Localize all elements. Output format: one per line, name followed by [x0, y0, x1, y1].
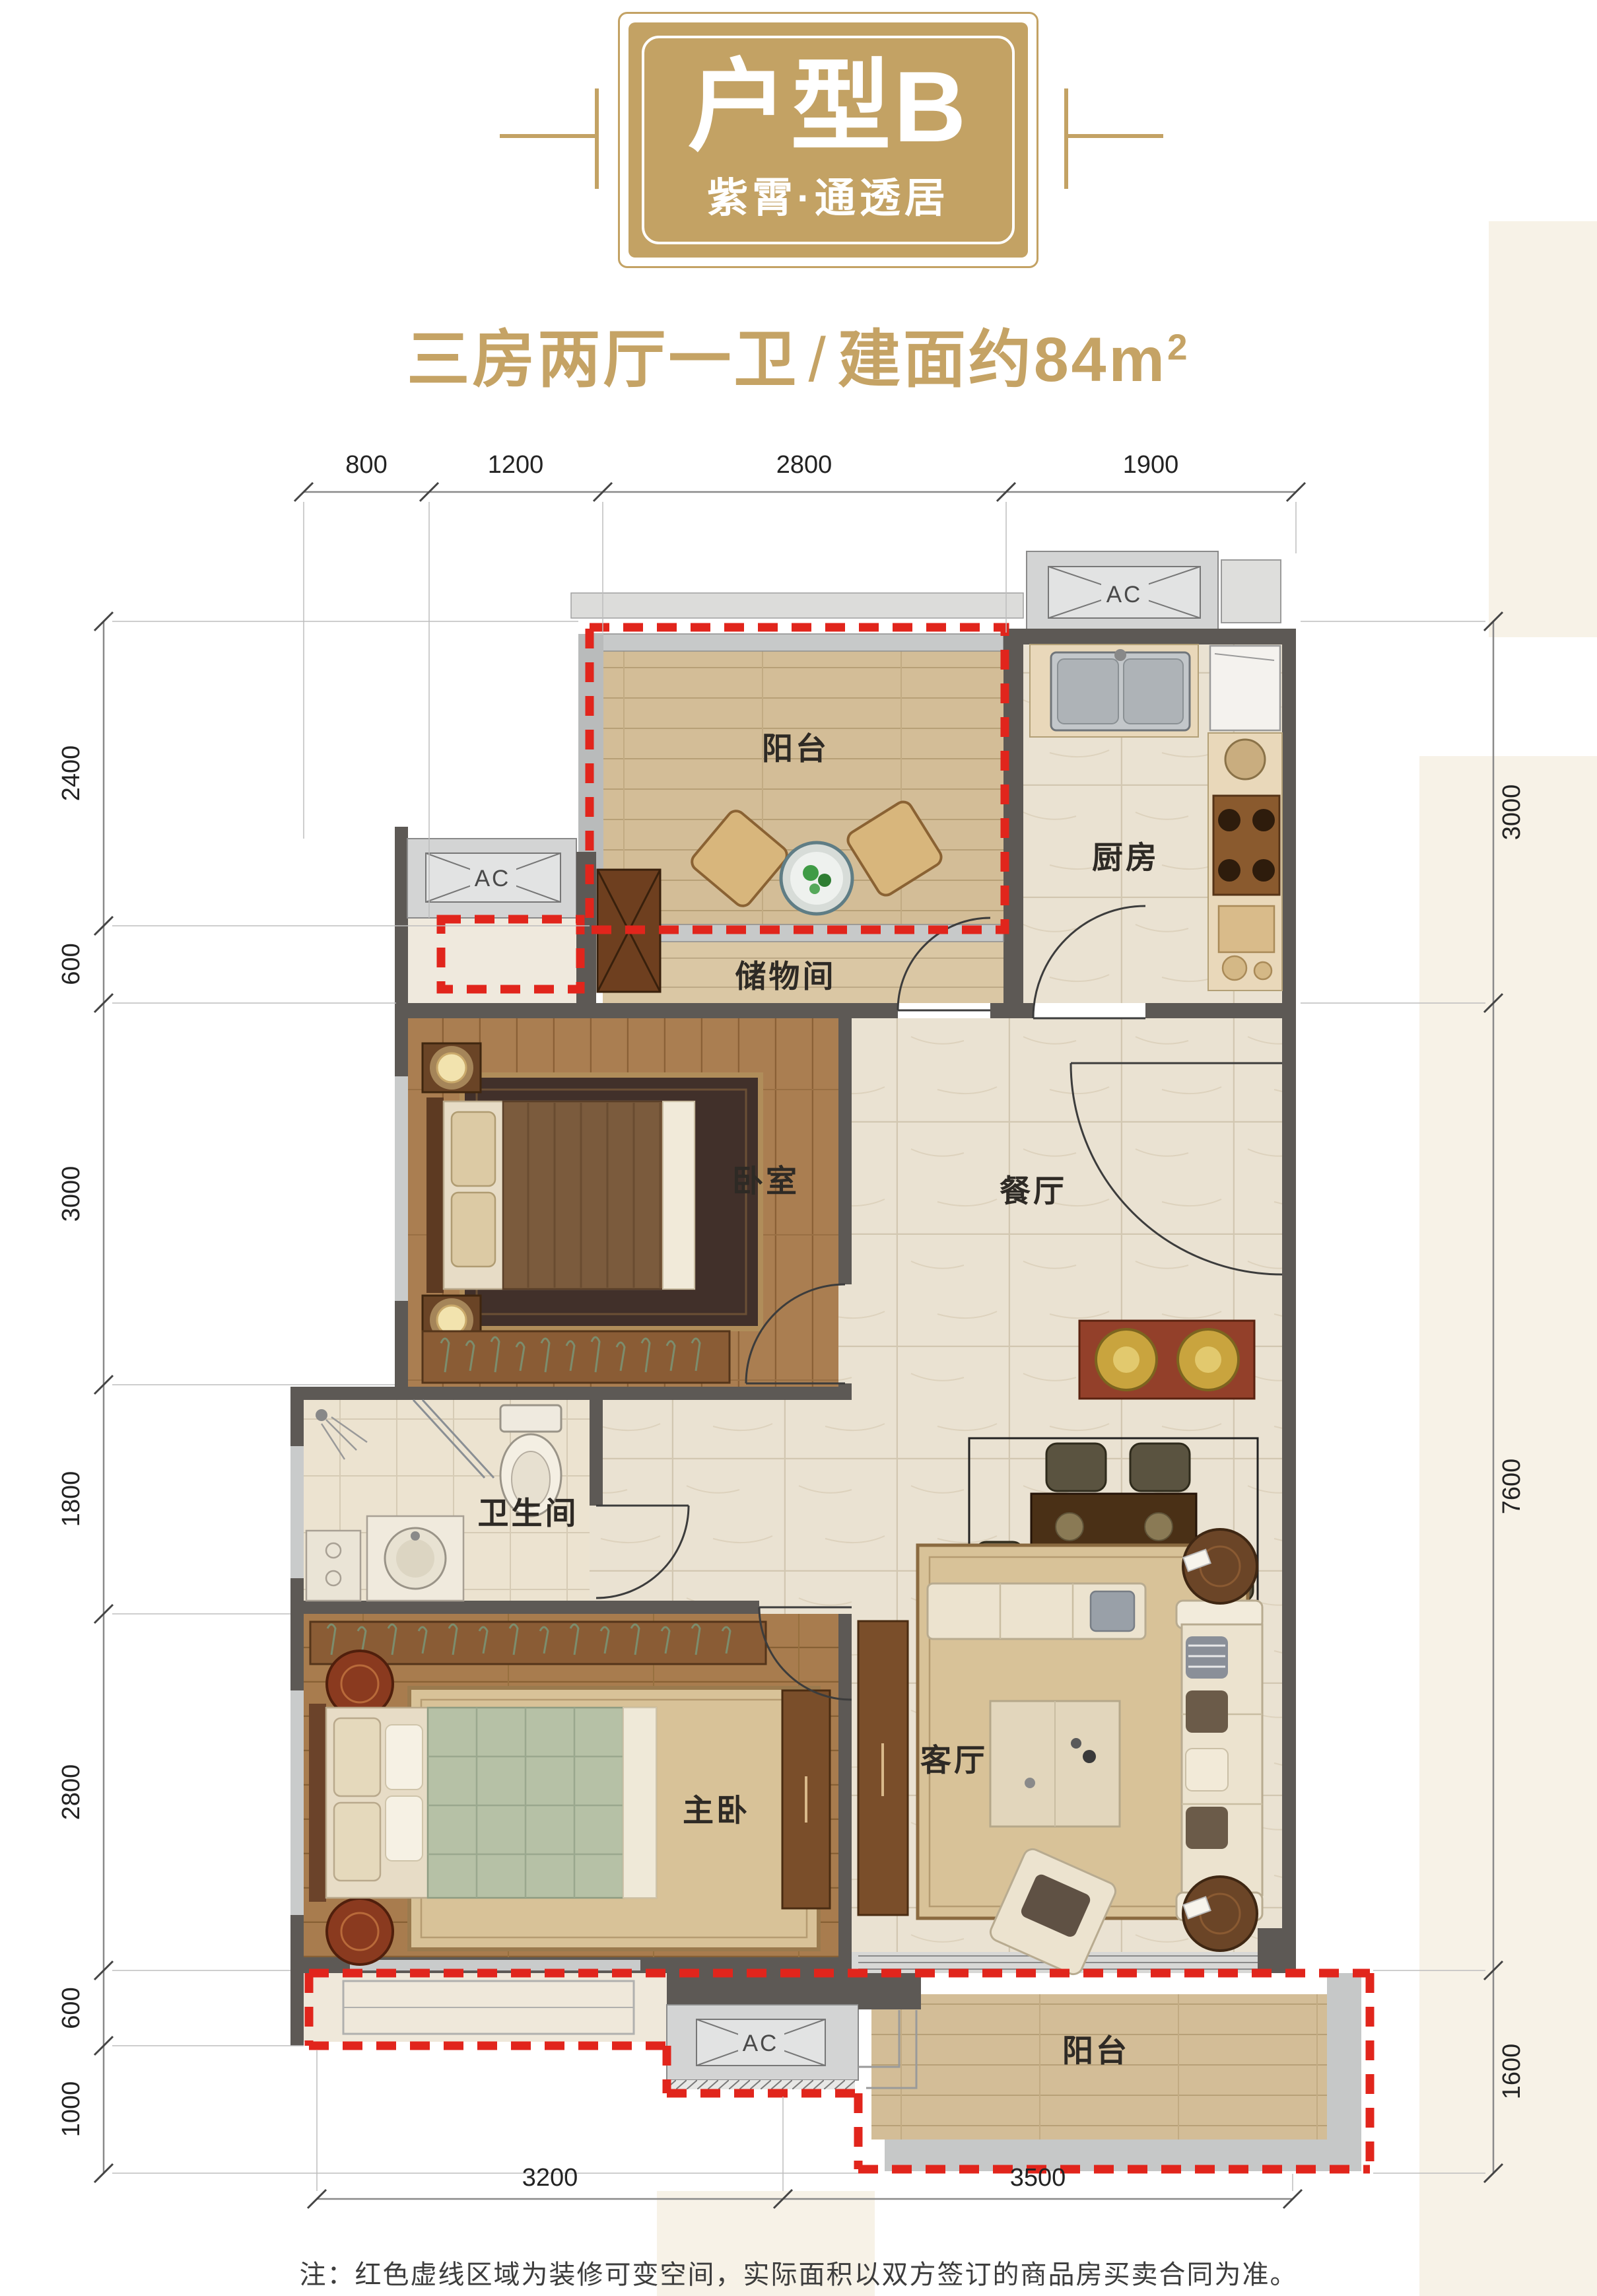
- dining-chair: [1130, 1444, 1190, 1491]
- bedroom-furniture: [423, 1043, 761, 1383]
- place-setting: [1056, 1513, 1083, 1541]
- balcony-table-top: [790, 852, 843, 905]
- sofa-pillow: [1186, 1636, 1228, 1679]
- dining-chair: [1046, 1444, 1106, 1491]
- plant-icon: [809, 884, 820, 894]
- bowl: [1223, 956, 1246, 980]
- master-sheet-fold: [623, 1708, 656, 1898]
- pillow: [452, 1193, 495, 1267]
- dim-bottom-3200: 3200: [522, 2164, 578, 2192]
- sideboard-plate-center: [1113, 1346, 1139, 1373]
- wall-corridor-master: [603, 1601, 759, 1614]
- bench-pillow: [1091, 1591, 1134, 1631]
- cutting-board: [1219, 906, 1274, 952]
- bath-cabinet: [306, 1531, 360, 1601]
- master-headboard: [309, 1704, 326, 1902]
- sink-basin-left: [1058, 659, 1118, 724]
- label-dining: 餐厅: [1000, 1173, 1067, 1208]
- pillow: [452, 1112, 495, 1186]
- label-living: 客厅: [920, 1743, 988, 1778]
- sideboard-plate-center: [1195, 1346, 1221, 1373]
- dim-left-1800: 1800: [57, 1471, 85, 1527]
- floorplan-canvas: AC AC AC: [0, 0, 1597, 2296]
- dim-top-800: 800: [345, 451, 387, 479]
- dim-right-1600: 1600: [1498, 2044, 1526, 2100]
- wall-kitchen-bottom-a: [1006, 1003, 1033, 1018]
- bed-sheet-fold: [663, 1101, 695, 1289]
- footnote: 注：红色虚线区域为装修可变空间，实际面积以双方签订的商品房买卖合同为准。: [0, 2253, 1597, 2291]
- wall-bathroom-bottom: [290, 1601, 616, 1614]
- lamp: [437, 1305, 466, 1335]
- plant-icon: [803, 865, 819, 881]
- wall-kitchen-bottom-b: [1145, 1003, 1296, 1018]
- table-decor: [1083, 1750, 1096, 1763]
- fridge: [1210, 646, 1280, 730]
- kettle: [1225, 740, 1265, 779]
- wall-bedroom-bottom: [395, 1387, 852, 1400]
- bed-headboard: [426, 1097, 444, 1293]
- wall-bedroom-right-a: [838, 1018, 852, 1284]
- wall-storage-bottom-b: [990, 1003, 1006, 1018]
- pillow: [334, 1803, 380, 1881]
- wall-above-balcony: [571, 593, 1023, 618]
- shower-head-icon: [316, 1409, 327, 1421]
- label-bathroom: 卫生间: [478, 1496, 579, 1531]
- wall-bay-left: [290, 1973, 304, 2046]
- sink-basin-right: [1124, 659, 1183, 724]
- dim-bottom-3500: 3500: [1010, 2164, 1066, 2192]
- dim-top-1200: 1200: [488, 451, 544, 479]
- dim-left-2800: 2800: [57, 1764, 85, 1821]
- dim-left-1000: 1000: [57, 2081, 85, 2138]
- pillow: [386, 1796, 423, 1861]
- burner: [1252, 859, 1275, 882]
- sofa-pillow: [1186, 1749, 1228, 1791]
- burner: [1218, 859, 1240, 882]
- dim-left-600a: 600: [57, 943, 85, 985]
- ac-label-left: AC: [475, 866, 511, 891]
- label-kitchen: 厨房: [1092, 840, 1159, 875]
- wall-right-outer: [1282, 629, 1296, 1973]
- pillow: [334, 1718, 380, 1796]
- label-balcony-top: 阳台: [762, 731, 829, 766]
- pillow: [386, 1725, 423, 1790]
- dim-left-2400: 2400: [57, 746, 85, 802]
- label-storage: 储物间: [735, 959, 836, 994]
- sink-faucet: [1114, 649, 1126, 661]
- table-decor: [1025, 1778, 1035, 1788]
- sofa-pillow: [1186, 1807, 1228, 1849]
- dim-right-3000: 3000: [1498, 784, 1526, 841]
- place-setting: [1145, 1513, 1172, 1541]
- wall-bedroom-top: [395, 1003, 852, 1018]
- bowl: [1254, 962, 1272, 979]
- window-bedroom-left: [395, 1076, 408, 1301]
- wall-above-ac-bottom: [667, 1973, 858, 2005]
- living-furniture: [858, 1529, 1262, 1977]
- wall-bathroom-right: [590, 1400, 603, 1506]
- dim-top-2800: 2800: [776, 451, 832, 479]
- label-balcony-bottom: 阳台: [1062, 2033, 1130, 2068]
- wash-basin-inner: [396, 1539, 434, 1578]
- round-side-table: [327, 1898, 393, 1965]
- ac-label-bottom: AC: [743, 2031, 779, 2056]
- balcony-top-rail: [591, 634, 1003, 651]
- ac-hatch-strip: [670, 2080, 855, 2089]
- wall-kitchen-top: [1020, 629, 1296, 644]
- label-bedroom: 卧室: [732, 1164, 799, 1199]
- burner: [1252, 809, 1275, 831]
- wall-bathroom-top: [290, 1387, 395, 1400]
- ac-label-top: AC: [1106, 582, 1143, 608]
- toilet-tank: [500, 1405, 561, 1432]
- table-decor: [1071, 1738, 1081, 1749]
- wall-master-right: [838, 1614, 852, 1970]
- bedroom-wardrobe: [423, 1331, 730, 1383]
- dim-right-7600: 7600: [1498, 1459, 1526, 1515]
- dimension-right: 3000 7600 1600: [1301, 612, 1526, 2182]
- label-master: 主卧: [683, 1793, 750, 1828]
- wall-corner-living: [1258, 1928, 1296, 1973]
- dim-left-3000: 3000: [57, 1166, 85, 1222]
- burner: [1218, 809, 1240, 831]
- dim-top-1900: 1900: [1123, 451, 1179, 479]
- plant-icon: [818, 874, 831, 887]
- wall-storage-bottom-a: [852, 1003, 898, 1018]
- sofa-pillow: [1186, 1690, 1228, 1733]
- vent-shaft: [1221, 560, 1281, 623]
- lamp: [437, 1053, 466, 1082]
- window-master-left: [290, 1690, 304, 1915]
- balcony-bottom-wall: [885, 2139, 1361, 2171]
- dim-left-600b: 600: [57, 1987, 85, 2029]
- balcony-bottom-left-wall: [858, 1973, 921, 2009]
- basin-faucet: [411, 1531, 420, 1541]
- window-bathroom-left: [290, 1446, 304, 1578]
- stove: [1213, 796, 1279, 895]
